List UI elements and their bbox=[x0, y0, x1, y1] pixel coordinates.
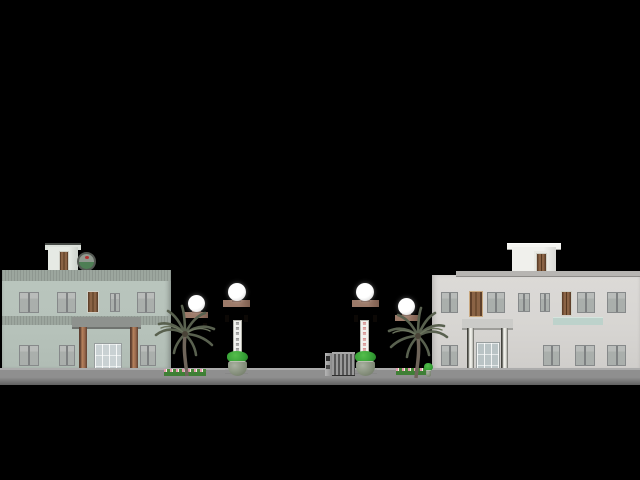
gate-name-sign-left: ≡≡≡≡≡≡ bbox=[233, 320, 242, 353]
gate-pillar-tall-left-notch-a bbox=[225, 315, 229, 322]
gate-pillar-tall-left-notch-b bbox=[244, 315, 248, 322]
entrance-gate: ≡≡≡≡≡≡ ≡≡≡≡≡≡ bbox=[0, 0, 640, 480]
palm-tree-left bbox=[153, 298, 219, 378]
palm-tree-right bbox=[384, 300, 450, 380]
gate-pillar-tall-right-notch-b bbox=[373, 315, 377, 322]
night-elevation-scene: ≡≡≡≡≡≡ ≡≡≡≡≡≡ bbox=[0, 0, 640, 480]
gate-pillar-tall-right-notch-a bbox=[354, 315, 358, 322]
accordion-gate bbox=[332, 352, 355, 376]
gate-name-sign-right: ≡≡≡≡≡≡ bbox=[360, 320, 369, 353]
globe-lamp-3 bbox=[356, 283, 374, 301]
globe-lamp-2 bbox=[228, 283, 246, 301]
gate-control-post bbox=[325, 353, 332, 376]
